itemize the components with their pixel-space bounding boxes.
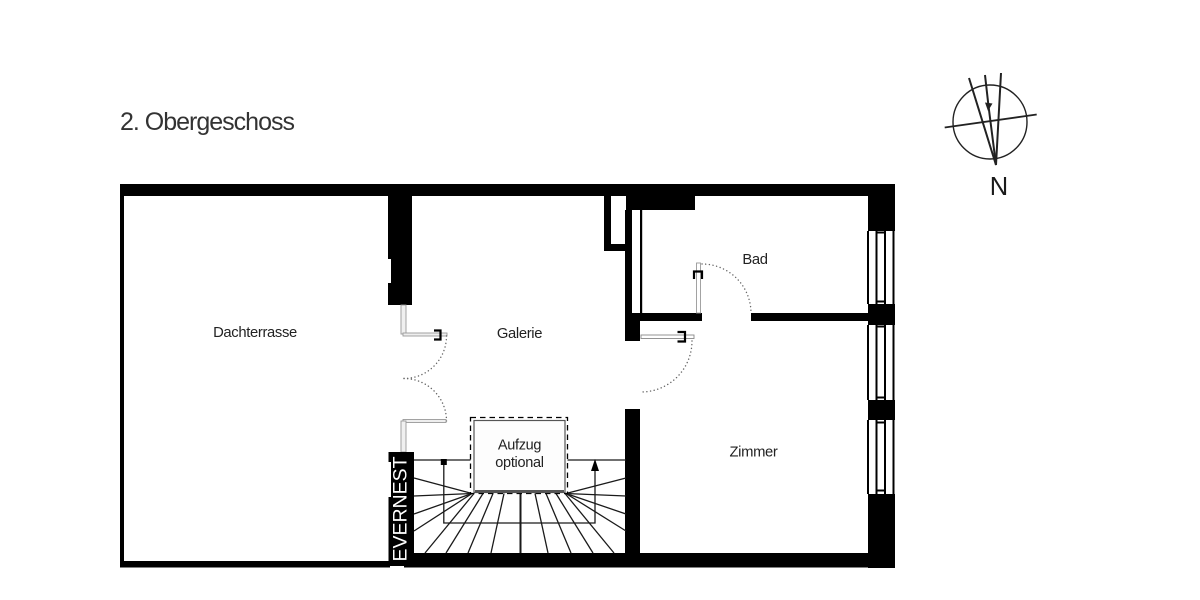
svg-text:Zimmer: Zimmer [729, 445, 777, 461]
svg-text:Galerie: Galerie [497, 326, 542, 342]
svg-text:Bad: Bad [742, 252, 767, 268]
svg-text:Aufzug: Aufzug [498, 438, 542, 454]
svg-text:EVERNEST: EVERNEST [390, 456, 412, 561]
svg-text:N: N [990, 173, 1008, 201]
svg-text:Dachterrasse: Dachterrasse [213, 325, 297, 341]
svg-text:optional: optional [495, 455, 543, 471]
svg-text:2. Obergeschoss: 2. Obergeschoss [120, 108, 294, 136]
